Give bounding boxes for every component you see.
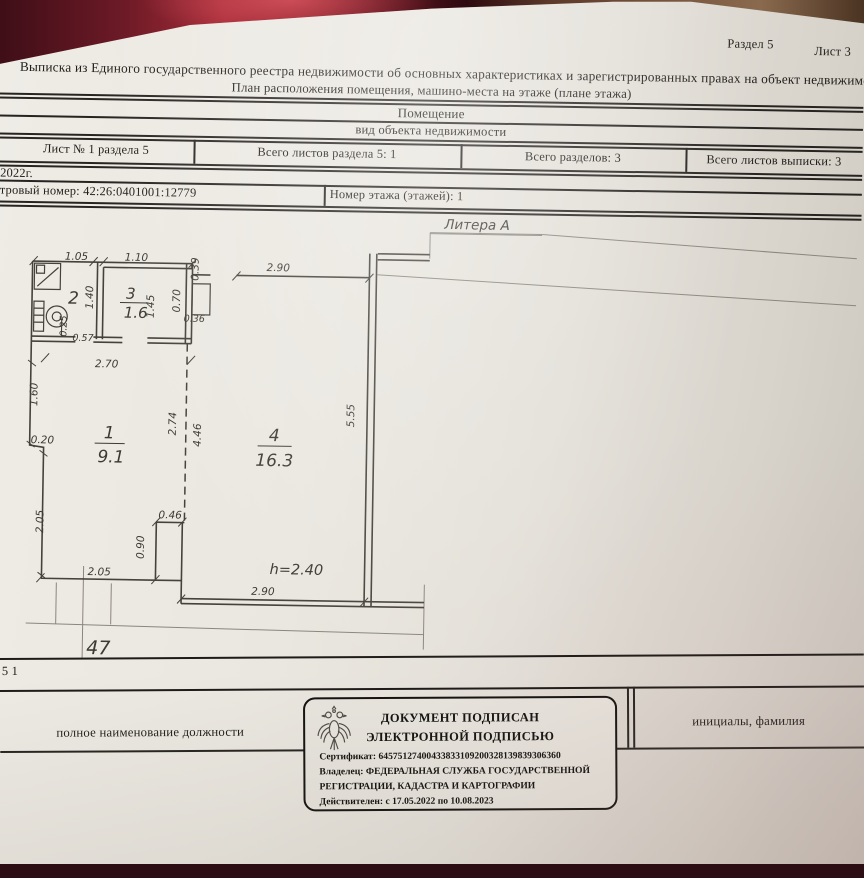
stamp-title-line2: ЭЛЕКТРОННОЙ ПОДПИСЬЮ (305, 729, 615, 746)
rule (0, 685, 864, 692)
document-footer-area: 5 1 полное наименование должности инициа… (0, 0, 864, 864)
name-caption: инициалы, фамилия (633, 713, 864, 729)
position-caption: полное наименование должности (0, 724, 300, 741)
stamp-owner-line2: РЕГИСТРАЦИИ, КАДАСТРА И КАРТОГРАФИИ (319, 780, 535, 792)
digital-signature-stamp: ДОКУМЕНТ ПОДПИСАН ЭЛЕКТРОННОЙ ПОДПИСЬЮ С… (303, 696, 618, 812)
stamp-certificate: Сертификат: 6457512740043383310920032813… (319, 750, 560, 762)
stamp-validity: Действителен: с 17.05.2022 по 10.08.2023 (320, 795, 494, 807)
document-sheet: Раздел 5 Лист 3 Выписка из Единого госуд… (0, 0, 864, 864)
stamp-owner-line1: Владелец: ФЕДЕРАЛЬНАЯ СЛУЖБА ГОСУДАРСТВЕ… (319, 765, 590, 777)
stamp-title-line1: ДОКУМЕНТ ПОДПИСАН (305, 710, 615, 727)
rule (0, 653, 864, 660)
cell-divider (627, 687, 629, 748)
page-fragment: 5 1 (2, 664, 18, 679)
